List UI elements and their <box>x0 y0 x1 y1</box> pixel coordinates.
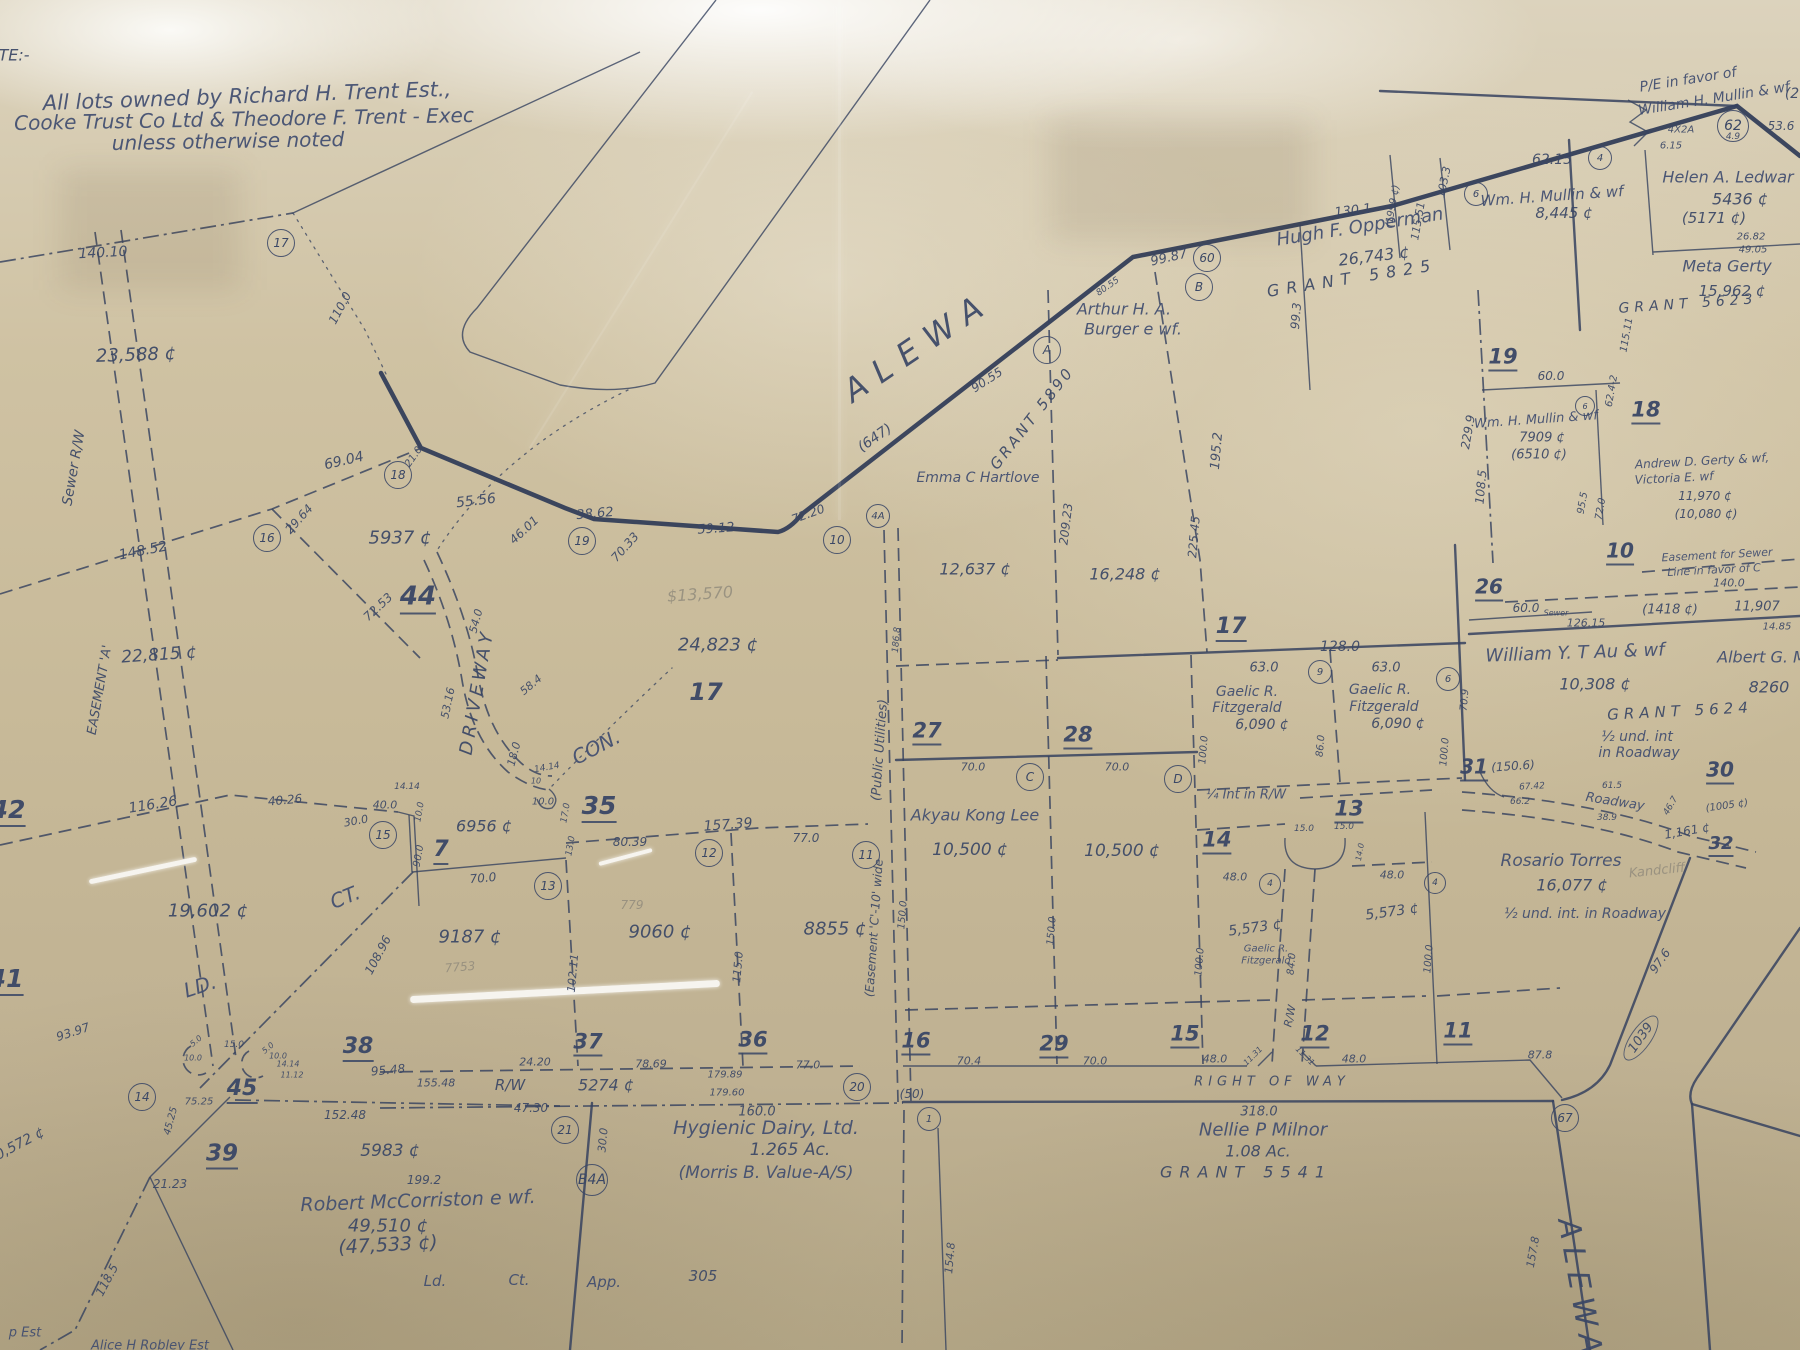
map-point-marker-a-10: A <box>1033 336 1061 364</box>
map-label-157-39: 157.39 <box>703 815 753 834</box>
map-label-11: 11 <box>1443 1019 1472 1046</box>
map-label-fitzgerald: Fitzgerald <box>1241 956 1291 967</box>
map-label-66-2: 66.2 <box>1510 797 1530 807</box>
map-label-sewer: Sewer <box>1544 609 1569 618</box>
map-label-14-85: 14.85 <box>1763 622 1792 633</box>
map-point-marker-4-26: 4 <box>1588 146 1612 170</box>
map-label-42: 42 <box>0 795 25 827</box>
map-label-10-500: 10,500 ¢ <box>932 840 1008 860</box>
map-label-gaelic-r: Gaelic R. <box>1349 682 1411 698</box>
map-label-26: 26 <box>1475 575 1503 602</box>
map-label-53-6: 53.6 <box>1768 119 1795 133</box>
map-label-63-0: 63.0 <box>1372 661 1401 676</box>
map-label-140-10: 140.10 <box>78 244 128 263</box>
map-label-6956: 6956 ¢ <box>456 817 512 836</box>
map-label-126-15: 126.15 <box>1567 617 1606 630</box>
map-label-13: 13 <box>1334 797 1363 824</box>
map-label-70-0: 70.0 <box>961 761 986 774</box>
map-label-15-0: 15.0 <box>224 1040 244 1050</box>
map-label-10-0: 10.0 <box>532 797 554 808</box>
map-point-marker-15-4: 15 <box>369 821 397 849</box>
map-label-35: 35 <box>582 791 617 823</box>
map-point-marker-14-21: 14 <box>128 1083 156 1111</box>
map-label-48-0: 48.0 <box>1203 1053 1228 1066</box>
map-label-burger-e-wf: Burger e wf. <box>1084 320 1182 339</box>
map-label-23-588: 23,588 ¢ <box>96 343 177 367</box>
map-label-gaelic-r: Gaelic R. <box>1244 944 1288 955</box>
map-point-marker-13-5: 13 <box>534 872 562 900</box>
map-label-80-39: 80.39 <box>613 835 647 849</box>
map-label-ld: Ld. <box>424 1272 447 1290</box>
map-label-meta-gerty: Meta Gerty <box>1682 257 1771 276</box>
map-point-marker-b4a-19: B4A <box>576 1164 608 1196</box>
map-label-44: 44 <box>400 582 436 615</box>
map-label-41: 41 <box>0 964 23 996</box>
map-label-48-0: 48.0 <box>1223 871 1248 884</box>
map-label-318-0: 318.0 <box>1240 1105 1277 1120</box>
map-label-int-in-r-w: ¼ Int in R/W <box>1206 788 1286 803</box>
map-label-grant-5541: GRANT 5541 <box>1160 1163 1332 1182</box>
map-label-arthur-h-a: Arthur H. A. <box>1077 300 1171 319</box>
map-label-36: 36 <box>738 1028 767 1055</box>
map-label-84-0: 84.0 <box>1286 952 1299 975</box>
map-label-15: 15 <box>1170 1022 1199 1049</box>
map-label-49-05: 49.05 <box>1739 245 1768 256</box>
map-label-47-30: 47.30 <box>514 1101 548 1115</box>
map-point-marker-b-11: B <box>1185 273 1213 301</box>
map-label-14: 14 <box>1202 828 1231 855</box>
map-label-6-090: 6,090 ¢ <box>1371 716 1424 732</box>
map-point-marker-21-18: 21 <box>551 1116 579 1144</box>
map-label-179-60: 179.60 <box>710 1088 745 1099</box>
map-point-marker-12-6: 12 <box>695 839 723 867</box>
map-label-right-of-way: RIGHT OF WAY <box>1194 1075 1350 1090</box>
map-label-alice-h-robley-est: Alice H Robley Est <box>91 1339 209 1350</box>
map-label-152-48: 152.48 <box>324 1108 366 1122</box>
map-label-4x2a: 4X2A <box>1668 125 1694 136</box>
map-label-5274: 5274 ¢ <box>578 1076 634 1095</box>
map-label-12: 12 <box>1300 1022 1329 1049</box>
map-point-marker-60-12: 60 <box>1193 244 1221 272</box>
map-label-24-823: 24,823 ¢ <box>678 635 758 656</box>
map-label-helen-a-ledwar: Helen A. Ledwar <box>1662 168 1793 187</box>
map-label-6-15: 6.15 <box>1660 141 1682 152</box>
paper-crease <box>838 0 841 520</box>
map-label-10: 10 <box>1606 539 1634 566</box>
map-point-marker-6-28: 6 <box>1575 396 1595 416</box>
map-label-und-int: ½ und. int <box>1601 729 1673 745</box>
map-label-108-5: 108.5 <box>1473 469 1490 504</box>
map-label-11-907: 11,907 <box>1734 600 1780 615</box>
map-label-115-0: 115.0 <box>730 951 746 984</box>
map-label-9187: 9187 ¢ <box>439 927 502 948</box>
map-point-marker-4a-9: 4A <box>866 504 890 528</box>
map-label-nellie-p-milnor: Nellie P Milnor <box>1199 1120 1327 1141</box>
map-label-2: (2 <box>1785 86 1799 102</box>
map-label-70-0: 70.0 <box>1105 761 1130 774</box>
map-label-6-090: 6,090 ¢ <box>1235 717 1288 733</box>
map-label-r-w: R/W <box>495 1076 525 1094</box>
map-label-128-0: 128.0 <box>1320 639 1360 655</box>
map-label-140-0: 140.0 <box>1713 577 1745 590</box>
map-label-16-077: 16,077 ¢ <box>1536 876 1607 895</box>
map-label-70-9: 70.9 <box>1459 688 1472 711</box>
map-label-5171: (5171 ¢) <box>1682 209 1746 227</box>
map-label-fitzgerald: Fitzgerald <box>1349 699 1418 715</box>
map-label-60-0: 60.0 <box>1513 601 1540 615</box>
map-label-32: 32 <box>1708 833 1733 857</box>
map-label-8855: 8855 ¢ <box>804 919 867 940</box>
map-point-marker-4-24: 4 <box>1424 872 1446 894</box>
map-point-marker-16-2: 16 <box>253 524 281 552</box>
map-label-199-2: 199.2 <box>407 1173 441 1187</box>
map-label-61-5: 61.5 <box>1602 781 1622 791</box>
map-label-7: 7 <box>433 837 448 865</box>
map-label-10-500: 10,500 ¢ <box>1084 841 1160 861</box>
map-label-unless-otherwise-noted: unless otherwise noted <box>112 127 345 155</box>
map-label-emma-c-hartlove: Emma C Hartlove <box>916 470 1039 486</box>
map-label-7753: 7753 <box>444 959 476 976</box>
map-label-albert-g-m: Albert G. M <box>1717 648 1800 667</box>
map-label-24-20: 24.20 <box>519 1056 551 1069</box>
map-label-38-9: 38.9 <box>1597 813 1617 823</box>
map-label-70-4: 70.4 <box>957 1055 982 1068</box>
map-point-marker-20-17: 20 <box>843 1073 871 1101</box>
map-label-86-0: 86.0 <box>1315 734 1328 757</box>
map-label-78-69: 78.69 <box>635 1058 667 1071</box>
map-label-5937: 5937 ¢ <box>369 528 432 549</box>
map-label-10-080: (10,080 ¢) <box>1675 507 1738 521</box>
map-label-1-08-ac: 1.08 Ac. <box>1225 1142 1291 1161</box>
map-label-95-48: 95.48 <box>370 1062 405 1079</box>
map-label-29: 29 <box>1039 1032 1068 1059</box>
map-label-8-445: 8,445 ¢ <box>1535 204 1592 222</box>
map-label-62-15: 62.15 <box>1532 152 1572 168</box>
map-label-30-0: 30.0 <box>595 1127 610 1153</box>
map-label-fitzgerald: Fitzgerald <box>1212 700 1281 716</box>
map-label-16: 16 <box>901 1029 930 1056</box>
map-label-14-14: 14.14 <box>394 782 420 792</box>
map-point-marker-d-14: D <box>1164 765 1192 793</box>
map-point-marker-9-15: 9 <box>1308 660 1332 684</box>
map-label-15-0: 15.0 <box>1334 822 1354 832</box>
paper-shadow <box>1050 120 1310 240</box>
map-label-11-12: 11.12 <box>281 1071 304 1080</box>
map-label-17: 17 <box>689 678 722 706</box>
map-point-marker-67-22: 67 <box>1551 1104 1579 1132</box>
map-label-8260: 8260 <box>1749 678 1790 697</box>
map-label-15-0: 15.0 <box>1294 824 1314 834</box>
map-label-45: 45 <box>227 1076 258 1104</box>
map-label-p-est: p Est <box>9 1326 41 1341</box>
map-label-48-0: 48.0 <box>1342 1053 1367 1066</box>
map-point-marker-4-23: 4 <box>1259 873 1281 895</box>
map-label-67-42: 67.42 <box>1519 781 1545 792</box>
map-label-70-0: 70.0 <box>1083 1055 1108 1068</box>
map-label-7909: 7909 ¢ <box>1519 431 1565 446</box>
map-label-48-0: 48.0 <box>1380 869 1405 882</box>
map-point-marker-10-8: 10 <box>823 526 851 554</box>
map-label-154-8: 154.8 <box>942 1242 958 1275</box>
map-label-18: 18 <box>1631 398 1660 425</box>
paper-shadow <box>60 170 240 290</box>
map-point-marker-11-7: 11 <box>852 841 880 869</box>
map-label-10: 10 <box>531 777 541 786</box>
map-label-50: (50) <box>900 1087 925 1101</box>
map-label-87-8: 87.8 <box>1528 1049 1553 1062</box>
map-label-40-0: 40.0 <box>373 799 398 812</box>
map-point-marker-19-3: 19 <box>568 527 596 555</box>
map-label-31: 31 <box>1460 755 1488 782</box>
map-label-70-0: 70.0 <box>469 870 497 886</box>
map-label-75-25: 75.25 <box>185 1097 214 1108</box>
map-label-37: 37 <box>573 1030 602 1057</box>
map-point-marker-1-20: 1 <box>917 1107 941 1131</box>
map-label-38: 38 <box>343 1034 374 1062</box>
map-point-marker-62-25: 62 <box>1717 110 1749 142</box>
map-label-11-970: 11,970 ¢ <box>1678 489 1731 503</box>
map-label-19: 19 <box>1488 345 1517 372</box>
map-point-marker-17-0: 17 <box>267 229 295 257</box>
map-label-5983: 5983 ¢ <box>360 1141 419 1161</box>
map-label-16-248: 16,248 ¢ <box>1089 565 1160 584</box>
map-label-779: 779 <box>621 898 644 912</box>
map-label-99-3: 99.3 <box>1288 302 1304 330</box>
map-point-marker-18-1: 18 <box>384 461 412 489</box>
map-label-app: App. <box>587 1273 621 1291</box>
map-point-marker-6-27: 6 <box>1464 182 1488 206</box>
map-label-10-308: 10,308 ¢ <box>1559 675 1630 694</box>
map-point-marker-c-13: C <box>1016 763 1044 791</box>
map-label-39: 39 <box>206 1141 238 1170</box>
map-label-60-0: 60.0 <box>1538 369 1565 383</box>
map-label-305: 305 <box>689 1267 718 1285</box>
map-label-28: 28 <box>1063 723 1092 750</box>
map-label-59-12: 59.12 <box>697 520 735 538</box>
map-label-12-637: 12,637 ¢ <box>939 560 1010 579</box>
map-label-6510: (6510 ¢) <box>1511 448 1567 463</box>
map-label-27: 27 <box>912 719 941 746</box>
map-label-akyau-kong-lee: Akyau Kong Lee <box>911 806 1039 825</box>
map-label-17: 17 <box>1216 614 1247 642</box>
map-label-in-roadway: in Roadway <box>1598 745 1679 761</box>
map-label-63-0: 63.0 <box>1250 661 1279 676</box>
map-label-155-48: 155.48 <box>417 1077 456 1090</box>
map-label-40-26: 40.26 <box>267 792 302 809</box>
map-label-gaelic-r: Gaelic R. <box>1216 684 1278 700</box>
map-label-77-0: 77.0 <box>796 1059 821 1072</box>
map-label-morris-b-value-a-s: (Morris B. Value-A/S) <box>679 1163 854 1183</box>
map-label-1-265-ac: 1.265 Ac. <box>750 1140 830 1160</box>
map-label-19-602: 19,602 ¢ <box>168 901 248 922</box>
map-label-te: TE:- <box>0 46 30 65</box>
map-label-5436: 5436 ¢ <box>1712 190 1768 209</box>
map-label-179-89: 179.89 <box>708 1070 743 1081</box>
map-label-14-14: 14.14 <box>277 1060 300 1069</box>
map-label-30: 30 <box>1706 758 1734 785</box>
map-label-und-int-in-roadway: ½ und. int. in Roadway <box>1504 906 1666 922</box>
map-label-1418: (1418 ¢) <box>1642 603 1698 618</box>
map-label-10-0: 10.0 <box>184 1054 202 1063</box>
map-label-rosario-torres: Rosario Torres <box>1501 851 1622 871</box>
map-label-77-0: 77.0 <box>793 831 820 845</box>
map-label-ct: Ct. <box>508 1271 529 1289</box>
map-label-hygienic-dairy-ltd: Hygienic Dairy, Ltd. <box>673 1117 859 1139</box>
map-label-9060: 9060 ¢ <box>629 922 692 943</box>
map-label-26-82: 26.82 <box>1737 232 1766 243</box>
map-label-21-23: 21.23 <box>153 1177 187 1191</box>
plat-map-photo: TE:-All lots owned by Richard H. Trent E… <box>0 0 1800 1350</box>
map-point-marker-6-16: 6 <box>1436 667 1460 691</box>
